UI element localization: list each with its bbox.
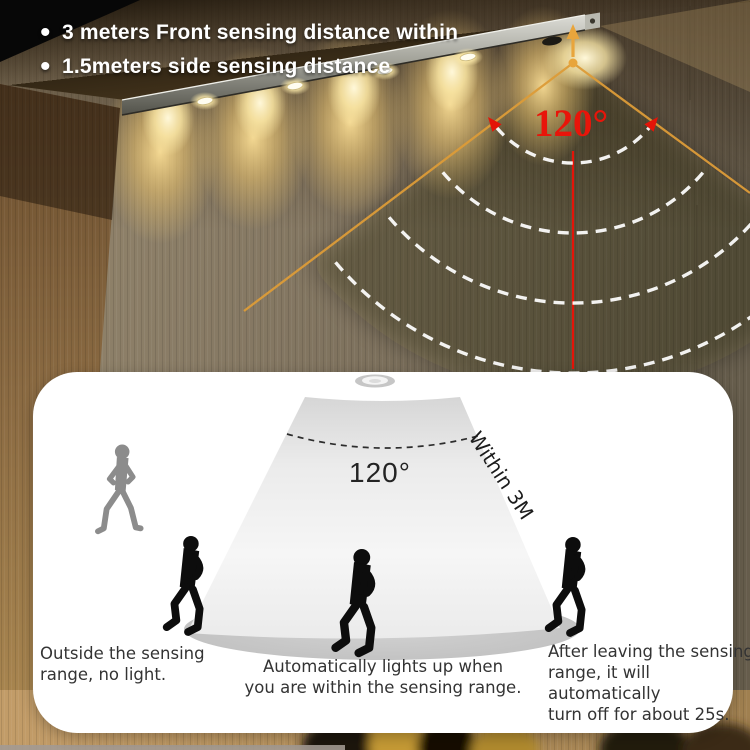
walking-person-icon	[98, 445, 141, 531]
bullet-dot-icon: •	[40, 52, 62, 82]
caption-line: range, it will automatically	[548, 662, 750, 704]
bullet-item-front-distance: • 3 meters Front sensing distance within	[40, 16, 458, 50]
diagram-angle-label: 120°	[320, 457, 440, 489]
product-promo-image: • 3 meters Front sensing distance within…	[0, 0, 750, 750]
bullet-label: 3 meters Front sensing distance within	[62, 21, 458, 45]
caption-line: Outside the sensing	[40, 643, 250, 664]
light-cone	[187, 397, 560, 638]
caption-outside-range: Outside the sensing range, no light.	[40, 643, 250, 685]
bullet-label: 1.5meters side sensing distance	[62, 55, 390, 79]
caption-line: After leaving the sensing	[548, 641, 750, 662]
sensor-top-view	[355, 375, 395, 388]
sensing-angle-label: 120°	[534, 104, 608, 143]
sensor-vertex-dot	[569, 59, 578, 68]
caption-line: Automatically lights up when	[231, 656, 535, 677]
diagram-panel: 120° Within 3M Outside the sensing range…	[33, 372, 733, 733]
floor-strip	[0, 745, 345, 750]
caption-line: range, no light.	[40, 664, 250, 685]
feature-bullet-list: • 3 meters Front sensing distance within…	[40, 16, 458, 84]
caption-inside-range: Automatically lights up when you are wit…	[231, 656, 535, 698]
end-cap-hole	[590, 18, 595, 23]
caption-leaving-range: After leaving the sensing range, it will…	[548, 641, 750, 725]
caption-line: you are within the sensing range.	[231, 677, 535, 698]
bullet-item-side-distance: • 1.5meters side sensing distance	[40, 50, 458, 84]
caption-line: turn off for about 25s.	[548, 704, 750, 725]
bullet-dot-icon: •	[40, 18, 62, 48]
running-person-icon	[167, 536, 200, 632]
